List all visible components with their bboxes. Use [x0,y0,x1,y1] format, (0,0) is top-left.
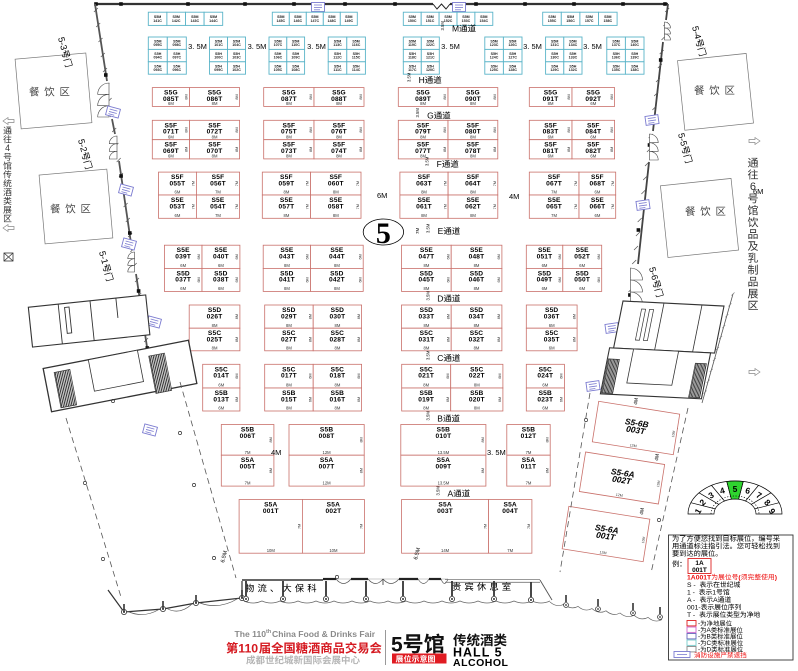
svg-text:8M: 8M [420,134,426,139]
svg-text:005T: 005T [240,464,256,471]
svg-text:6M: 6M [542,406,548,411]
svg-text:8M: 8M [286,406,292,411]
svg-text:051T: 051T [537,254,553,261]
svg-text:135C: 135C [612,68,621,72]
svg-text:7M: 7M [551,213,557,218]
svg-text:055T: 055T [169,180,185,187]
svg-text:6M: 6M [358,277,362,282]
svg-text:6M: 6M [594,213,600,218]
svg-text:8M: 8M [470,213,476,218]
svg-text:6M: 6M [597,254,601,259]
svg-text:003T: 003T [437,508,453,515]
svg-text:8M: 8M [359,437,363,442]
svg-text:142C: 142C [172,19,181,23]
svg-text:137C: 137C [612,43,621,47]
svg-text:6M: 6M [560,397,564,402]
svg-text:8M: 8M [470,154,476,159]
svg-text:001T: 001T [263,508,279,515]
svg-text:124C: 124C [490,56,499,60]
svg-text:1 -: 1 - [687,590,695,597]
svg-text:6M: 6M [180,263,186,268]
svg-text:7M: 7M [192,181,196,186]
svg-text:6M: 6M [446,254,450,259]
svg-text:1: 1 [712,590,716,597]
svg-text:156C: 156C [566,19,575,23]
svg-text:6M: 6M [590,101,596,106]
svg-text:008T: 008T [319,433,335,440]
svg-text:8M: 8M [212,134,218,139]
svg-text:031T: 031T [418,337,434,344]
svg-text:6M: 6M [497,277,501,282]
svg-text:100C: 100C [214,56,223,60]
svg-text:119C: 119C [408,43,417,47]
svg-text:002T: 002T [325,508,341,515]
svg-text:12M: 12M [323,481,332,486]
svg-text:038T: 038T [213,277,229,284]
svg-text:062T: 062T [465,203,481,210]
svg-text:095C: 095C [154,43,163,47]
svg-text:8M: 8M [545,437,549,442]
svg-text:8M: 8M [481,468,485,473]
svg-text:056T: 056T [210,180,226,187]
svg-text:8M: 8M [420,101,426,106]
svg-text:130C: 130C [550,56,559,60]
svg-text:154C: 154C [480,19,489,23]
svg-text:4: 4 [5,143,10,153]
svg-text:7M: 7M [356,181,360,186]
svg-text:014T: 014T [213,373,229,380]
svg-text:7M: 7M [235,204,239,209]
svg-text:158C: 158C [604,19,613,23]
svg-text:6M: 6M [235,277,239,282]
svg-text:8M: 8M [185,147,189,152]
svg-text:140C: 140C [630,43,639,47]
svg-text:101C: 101C [214,43,223,47]
svg-text:027T: 027T [281,337,297,344]
svg-text:143C: 143C [191,19,200,23]
svg-text:6M: 6M [446,373,450,378]
svg-text:8M: 8M [269,468,273,473]
svg-text:8M: 8M [286,134,292,139]
svg-text:8M: 8M [359,127,363,132]
svg-text:8M: 8M [333,213,339,218]
svg-text:021T: 021T [418,373,434,380]
svg-text:039T: 039T [175,254,191,261]
svg-text:8M: 8M [567,94,571,99]
svg-text:144C: 144C [209,19,218,23]
svg-text:113C: 113C [333,43,342,47]
svg-text:017T: 017T [281,373,297,380]
svg-text:3.5M: 3.5M [425,350,430,360]
svg-text:060T: 060T [328,180,344,187]
svg-text:7M: 7M [360,524,364,529]
svg-text:4M: 4M [509,192,519,201]
svg-text:032T: 032T [469,337,485,344]
svg-text:1A001T: 1A001T [687,575,712,582]
svg-text:6M: 6M [542,263,548,268]
svg-text:107C: 107C [274,43,283,47]
svg-text:8M: 8M [336,134,342,139]
svg-text:3.5M: 3.5M [436,486,441,496]
svg-text:8M: 8M [423,263,429,268]
svg-text:8M: 8M [284,263,290,268]
svg-text:T -: T - [687,612,695,619]
svg-text:7M: 7M [192,204,196,209]
svg-text:3.5M: 3.5M [425,411,430,421]
svg-text:8M: 8M [336,101,342,106]
svg-text:8M: 8M [567,147,571,152]
svg-text:010T: 010T [435,433,451,440]
svg-text:6M: 6M [597,277,601,282]
svg-text:7M: 7M [574,181,578,186]
svg-text:8M: 8M [308,314,312,319]
svg-text:116C: 116C [352,43,361,47]
svg-text:112C: 112C [333,56,342,60]
svg-text:6M: 6M [308,373,312,378]
svg-text:A: A [448,489,454,499]
svg-text:10M: 10M [329,548,338,553]
svg-text:020T: 020T [469,396,485,403]
svg-text:049T: 049T [537,277,553,284]
svg-text:4M: 4M [654,454,661,462]
svg-text:6M: 6M [560,373,564,378]
svg-text:8M: 8M [212,154,218,159]
svg-text:6M: 6M [180,286,186,291]
svg-text:8M: 8M [212,101,218,106]
svg-text:3. 5M: 3. 5M [307,42,326,51]
svg-text:8M: 8M [185,94,189,99]
svg-text:8M: 8M [421,213,427,218]
svg-text:6M: 6M [218,406,224,411]
svg-text:3. 5M: 3. 5M [188,42,207,51]
svg-text:8M: 8M [548,101,554,106]
svg-text:009T: 009T [435,464,451,471]
svg-text:6M: 6M [549,323,555,328]
svg-text:8M: 8M [284,286,290,291]
svg-text:8M: 8M [333,190,339,195]
svg-text:D: D [437,294,443,304]
svg-text:6: 6 [750,181,756,193]
svg-text:13.5M: 13.5M [438,450,450,455]
svg-text:8M: 8M [235,314,239,319]
svg-text:8M: 8M [334,286,340,291]
svg-text:097C: 097C [173,56,182,60]
svg-text:7M: 7M [245,450,251,455]
svg-text:7M: 7M [526,450,532,455]
svg-text:105C: 105C [274,68,283,72]
svg-text:068T: 068T [589,180,605,187]
svg-text:7M: 7M [526,481,532,486]
svg-text:042T: 042T [329,277,345,284]
svg-text:6M: 6M [549,345,555,350]
svg-text:8M: 8M [423,323,429,328]
svg-text:8M: 8M [283,190,289,195]
svg-text:8M: 8M [212,345,218,350]
svg-text:6M: 6M [579,286,585,291]
svg-text:122C: 122C [426,43,435,47]
svg-text:1A: 1A [695,560,704,567]
svg-text:5: 5 [376,217,391,250]
svg-text:004T: 004T [502,508,518,515]
svg-text:061T: 061T [416,203,432,210]
svg-text:115C: 115C [352,56,361,60]
svg-text:3.5M: 3.5M [425,156,430,166]
svg-text:8M: 8M [423,345,429,350]
svg-text:6M: 6M [235,373,239,378]
svg-text:059T: 059T [278,180,294,187]
svg-text:8M: 8M [474,263,480,268]
svg-text:023T: 023T [537,396,553,403]
svg-text:8M: 8M [359,468,363,473]
svg-text:125C: 125C [490,68,499,72]
svg-text:8M: 8M [493,147,497,152]
svg-text:6M: 6M [358,254,362,259]
svg-text:033T: 033T [418,313,434,320]
svg-text:6M: 6M [197,254,201,259]
svg-text:047T: 047T [418,254,434,261]
svg-text:6M: 6M [548,134,554,139]
svg-text:8M: 8M [497,337,501,342]
svg-text:133C: 133C [569,56,578,60]
svg-text:14M: 14M [441,548,450,553]
svg-text:8M: 8M [269,437,273,442]
svg-text:013T: 013T [213,396,229,403]
svg-text:8M: 8M [283,213,289,218]
svg-text:126C: 126C [508,43,517,47]
svg-text:132C: 132C [569,68,578,72]
svg-text:8M: 8M [493,94,497,99]
svg-text:6M: 6M [590,154,596,159]
svg-text:): ) [775,575,777,582]
svg-text:6M: 6M [306,277,310,282]
svg-text:8M: 8M [493,127,497,132]
svg-text:067T: 067T [546,180,562,187]
svg-text:6M: 6M [594,190,600,195]
svg-text:B: B [437,414,443,424]
svg-text:057T: 057T [278,203,294,210]
svg-text:6M: 6M [218,263,224,268]
svg-text:134C: 134C [569,43,578,47]
svg-text:064T: 064T [465,180,481,187]
svg-text:5: 5 [391,634,403,657]
svg-text:052T: 052T [574,254,590,261]
svg-text:150C: 150C [408,19,417,23]
svg-text:7M: 7M [611,204,615,209]
svg-text:6M: 6M [579,263,585,268]
svg-text:6M: 6M [542,383,548,388]
svg-text:13.5M: 13.5M [438,481,450,486]
svg-text:7M: 7M [443,181,447,186]
svg-text:025T: 025T [207,337,223,344]
svg-text:129C: 129C [550,68,559,72]
svg-text:3. 5M: 3. 5M [248,42,267,51]
svg-text:ALCOHOL: ALCOHOL [453,657,508,666]
svg-text:8M: 8M [443,147,447,152]
svg-text:149C: 149C [345,19,354,23]
svg-text:8M: 8M [470,101,476,106]
svg-text:8M: 8M [474,323,480,328]
svg-text:7M: 7M [306,181,310,186]
svg-text:012T: 012T [521,433,537,440]
svg-text:8M: 8M [610,147,614,152]
svg-text:F: F [437,159,442,169]
svg-text:019T: 019T [418,396,434,403]
svg-text:4M: 4M [633,398,640,406]
svg-text:8M: 8M [423,406,429,411]
svg-text:3.5M: 3.5M [425,291,430,301]
svg-text:120C: 120C [426,68,435,72]
svg-text:054T: 054T [210,203,226,210]
svg-text:8M: 8M [610,127,614,132]
svg-text:7M: 7M [493,204,497,209]
svg-text:8M: 8M [357,314,361,319]
svg-text:8M: 8M [446,314,450,319]
svg-text:8M: 8M [359,147,363,152]
svg-text:8M: 8M [309,147,313,152]
svg-text:096C: 096C [173,68,182,72]
svg-text:7M: 7M [611,181,615,186]
svg-text:8M: 8M [357,337,361,342]
svg-text:8M: 8M [334,406,340,411]
svg-text:035T: 035T [544,337,560,344]
svg-text:148C: 148C [328,19,337,23]
svg-text:118C: 118C [408,56,417,60]
svg-text:4M: 4M [271,448,281,457]
svg-text:6M: 6M [235,397,239,402]
svg-text:8M: 8M [336,154,342,159]
svg-text:7M: 7M [245,481,251,486]
svg-text:6M: 6M [542,286,548,291]
svg-text:G: G [427,111,434,121]
svg-text:141C: 141C [153,19,162,23]
svg-text:6M: 6M [218,383,224,388]
svg-text:8M: 8M [308,337,312,342]
svg-text:8M: 8M [470,190,476,195]
svg-text:106C: 106C [274,56,283,60]
svg-text:The 110: The 110 [235,629,267,639]
svg-text:6M: 6M [197,277,201,282]
svg-text:7M: 7M [484,524,488,529]
svg-text:026T: 026T [207,313,223,320]
svg-text:E: E [438,226,444,236]
svg-text:6M: 6M [498,397,502,402]
svg-text:001-: 001- [687,605,701,612]
svg-text:037T: 037T [175,277,191,284]
svg-text:12M: 12M [323,450,332,455]
svg-text:8M: 8M [286,345,292,350]
svg-text:8M: 8M [185,127,189,132]
svg-text:111C: 111C [333,68,342,72]
svg-text:8M: 8M [545,468,549,473]
svg-text:China Food & Drinks Fair: China Food & Drinks Fair [272,629,376,639]
svg-text:041T: 041T [279,277,295,284]
svg-text:146C: 146C [294,19,303,23]
svg-text:050T: 050T [574,277,590,284]
svg-text:8M: 8M [423,286,429,291]
svg-text:109C: 109C [291,56,300,60]
svg-text:6M: 6M [498,373,502,378]
svg-text:098C: 098C [173,43,182,47]
svg-text:7M: 7M [507,548,513,553]
svg-text:3.5M: 3.5M [440,21,445,31]
svg-text:3. 5M: 3. 5M [583,42,602,51]
svg-text:6M: 6M [218,286,224,291]
svg-text:S -: S - [687,582,696,589]
svg-text:104C: 104C [232,43,241,47]
svg-text:6M: 6M [558,277,562,282]
svg-text:8M: 8M [421,190,427,195]
svg-text:053T: 053T [169,203,185,210]
svg-text:8M: 8M [474,383,480,388]
svg-text:6M: 6M [357,397,361,402]
svg-text:048T: 048T [469,254,485,261]
svg-text:7M: 7M [415,227,420,234]
svg-text:151C: 151C [426,19,435,23]
svg-text:139C: 139C [630,56,639,60]
svg-text:155C: 155C [548,19,557,23]
svg-text:6M: 6M [235,254,239,259]
svg-text:8M: 8M [212,323,218,328]
svg-text:102C: 102C [232,68,241,72]
svg-text:8M: 8M [286,101,292,106]
svg-text:6M: 6M [357,373,361,378]
svg-text:8M: 8M [443,127,447,132]
svg-text:8M: 8M [481,437,485,442]
svg-text:094C: 094C [154,56,163,60]
svg-text:099C: 099C [214,68,223,72]
svg-text:6M: 6M [590,134,596,139]
svg-text:8M: 8M [286,154,292,159]
svg-text:6M: 6M [548,154,554,159]
svg-text:6M: 6M [168,134,174,139]
svg-text:8M: 8M [286,383,292,388]
svg-text:6M: 6M [497,254,501,259]
svg-text:045T: 045T [418,277,434,284]
svg-text:046T: 046T [469,277,485,284]
svg-text:043T: 043T [279,254,295,261]
svg-text:8M: 8M [309,94,313,99]
svg-text:8M: 8M [497,314,501,319]
svg-text:7M: 7M [298,524,302,529]
svg-text:3. 5M: 3. 5M [487,448,506,457]
svg-text:034T: 034T [469,313,485,320]
svg-text:7M: 7M [306,204,310,209]
svg-text:7M: 7M [215,190,221,195]
svg-text:028T: 028T [329,337,345,344]
svg-text:001T: 001T [692,567,707,574]
svg-text:6M: 6M [558,254,562,259]
svg-text:6M: 6M [306,254,310,259]
svg-text:3. 5M: 3. 5M [523,42,542,51]
svg-text:029T: 029T [281,313,297,320]
svg-text:8M: 8M [334,263,340,268]
svg-text:030T: 030T [329,313,345,320]
svg-text:3.5M: 3.5M [415,108,420,118]
svg-text:8M: 8M [235,127,239,132]
svg-text:128C: 128C [508,68,517,72]
svg-text:5: 5 [733,484,738,494]
svg-text:7M: 7M [235,181,239,186]
svg-text:7M: 7M [551,190,557,195]
svg-text:8M: 8M [334,383,340,388]
svg-text:8M: 8M [474,406,480,411]
svg-text:6M: 6M [174,190,180,195]
svg-text:024T: 024T [537,373,553,380]
svg-text:022T: 022T [469,373,485,380]
svg-text:058T: 058T [328,203,344,210]
svg-text:108C: 108C [291,68,300,72]
svg-text:7M: 7M [574,204,578,209]
